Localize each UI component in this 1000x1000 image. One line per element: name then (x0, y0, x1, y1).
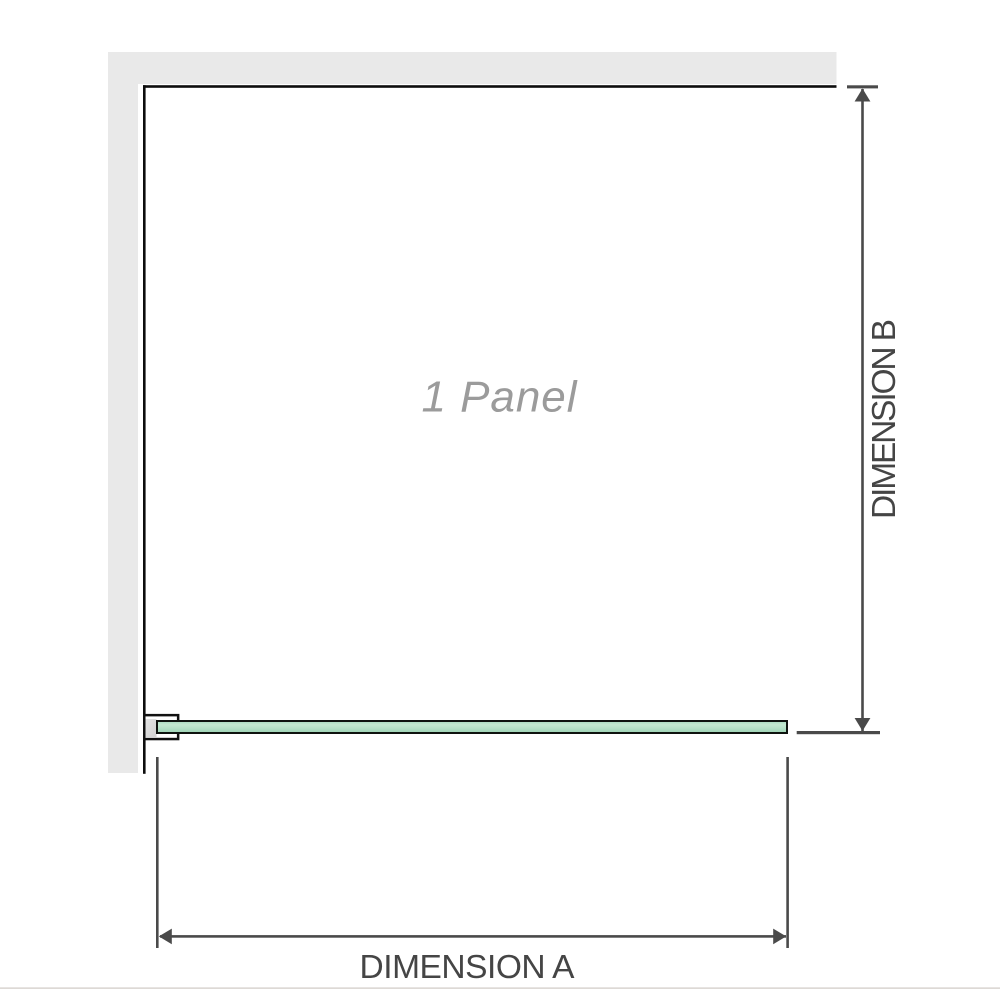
svg-text:1 Panel: 1 Panel (422, 373, 578, 422)
svg-text:DIMENSION B: DIMENSION B (866, 319, 903, 519)
svg-text:DIMENSION A: DIMENSION A (360, 949, 576, 986)
